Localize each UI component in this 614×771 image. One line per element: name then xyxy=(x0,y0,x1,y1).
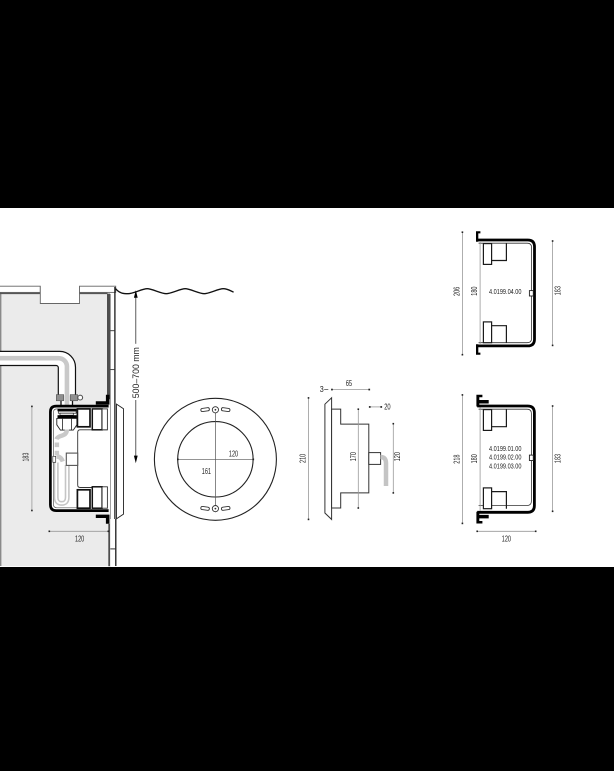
svg-text:183: 183 xyxy=(21,452,31,461)
svg-text:20: 20 xyxy=(384,402,391,412)
svg-text:120: 120 xyxy=(502,534,511,544)
svg-text:4.0199.02.00: 4.0199.02.00 xyxy=(489,455,522,462)
svg-text:183: 183 xyxy=(553,454,563,463)
svg-text:218: 218 xyxy=(452,454,462,463)
svg-text:3: 3 xyxy=(320,384,324,394)
svg-text:120: 120 xyxy=(229,449,238,459)
svg-text:180: 180 xyxy=(469,454,479,463)
svg-text:65: 65 xyxy=(346,378,353,388)
svg-text:4.0199.04.00: 4.0199.04.00 xyxy=(489,289,522,296)
svg-text:180: 180 xyxy=(469,286,479,295)
svg-text:183: 183 xyxy=(553,286,563,295)
svg-text:161: 161 xyxy=(202,466,211,476)
svg-text:210: 210 xyxy=(298,454,308,463)
svg-text:170: 170 xyxy=(348,452,358,461)
svg-text:120: 120 xyxy=(392,452,402,461)
svg-text:120: 120 xyxy=(75,533,84,543)
svg-text:206: 206 xyxy=(452,287,462,296)
svg-text:4.0199.01.00: 4.0199.01.00 xyxy=(489,446,522,453)
svg-text:4.0199.03.00: 4.0199.03.00 xyxy=(489,463,522,470)
svg-text:500–700 mm: 500–700 mm xyxy=(131,347,141,398)
